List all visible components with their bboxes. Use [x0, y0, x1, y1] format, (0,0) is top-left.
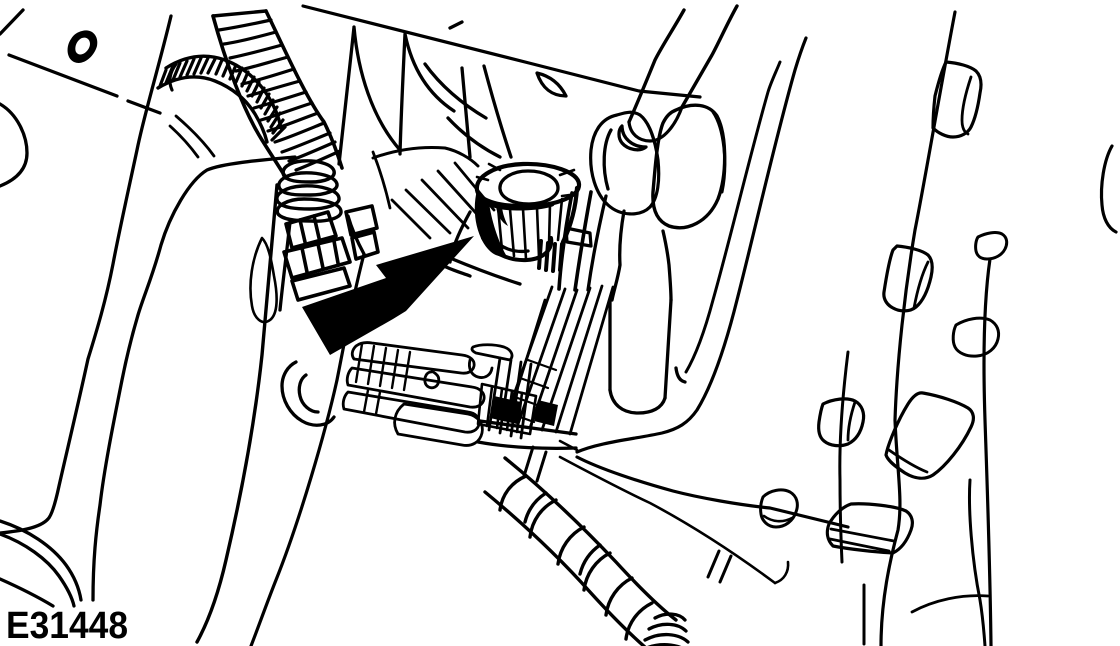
svg-text:E31448: E31448 — [6, 605, 128, 646]
